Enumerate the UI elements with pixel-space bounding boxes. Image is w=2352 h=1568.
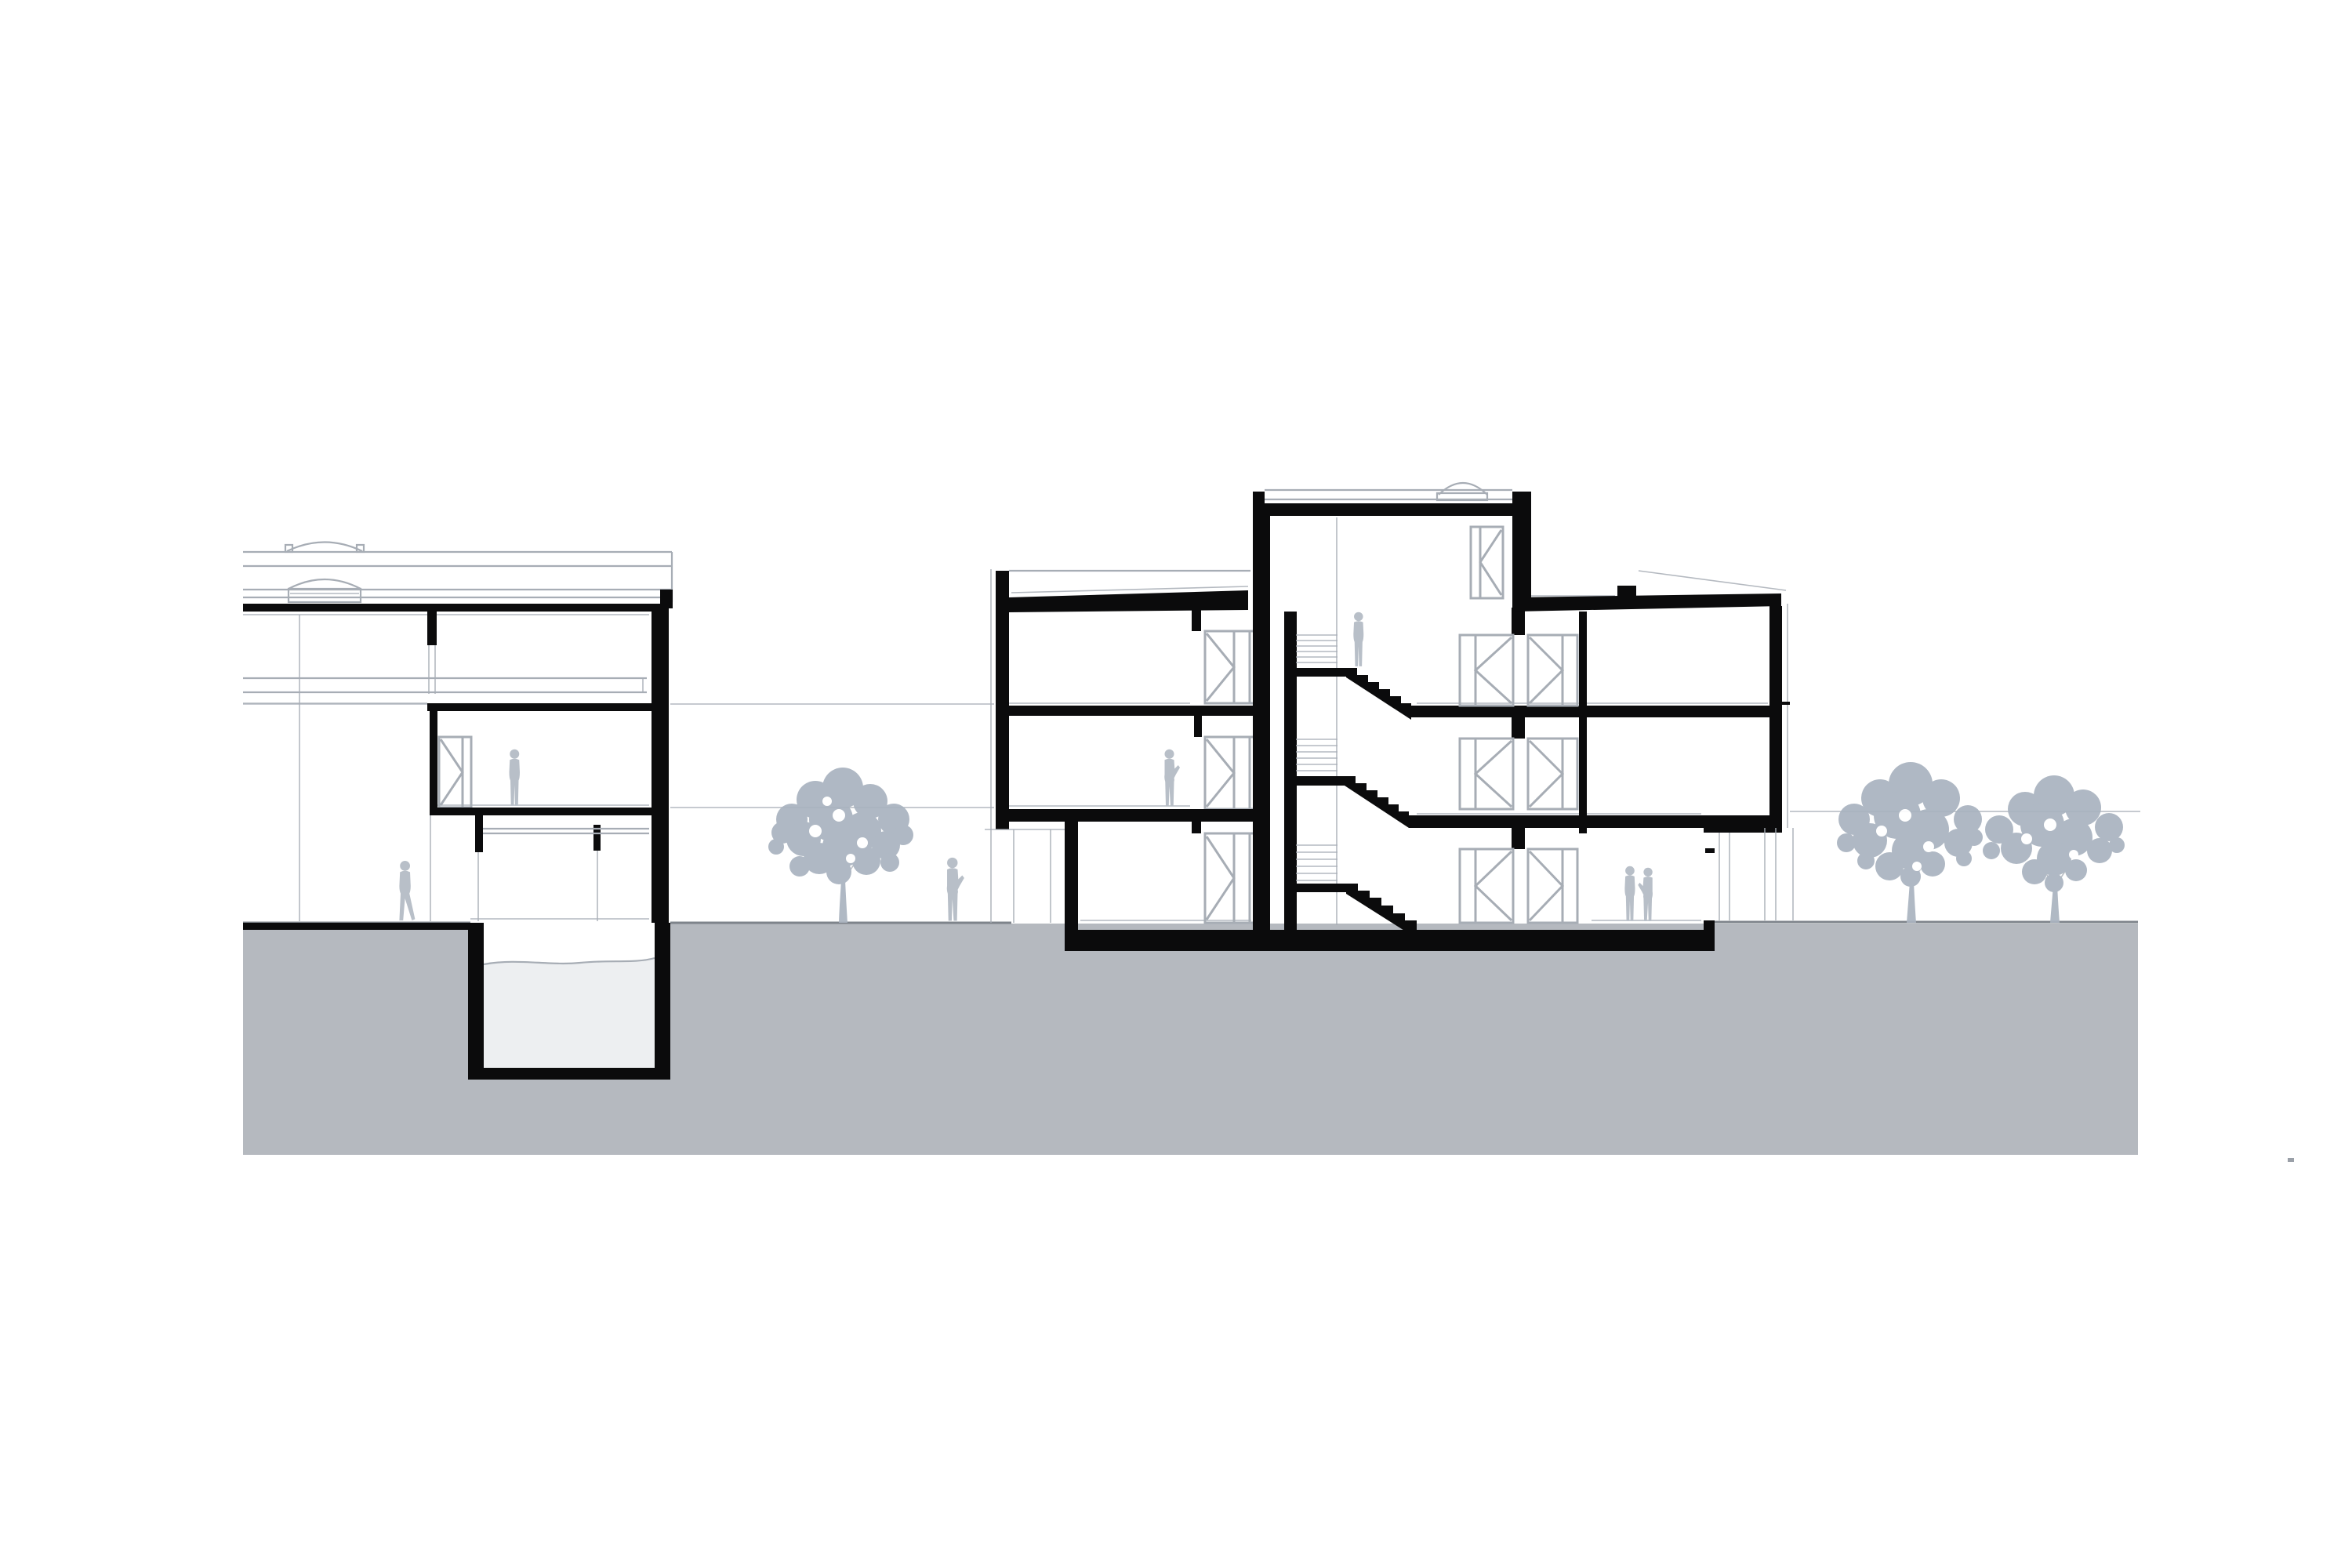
upper-mullion <box>427 612 437 645</box>
door-head-wall-mid <box>1194 716 1202 737</box>
pool-floor-slab <box>468 1068 670 1080</box>
right-wall <box>652 604 669 923</box>
east-slab-1f <box>1409 815 1704 828</box>
door-head-wall-upper <box>1192 610 1201 631</box>
pool-water <box>484 958 655 1069</box>
east-gf-glass-lines <box>1719 828 1793 920</box>
main-building-east-wing <box>1409 571 1793 930</box>
section-drawing <box>0 0 2352 1568</box>
architectural-section-canvas <box>0 0 2352 1568</box>
stray-mark <box>2288 1158 2294 1162</box>
landing-1 <box>1294 884 1346 892</box>
shaft-lintel-gf <box>1512 826 1525 849</box>
tower-parapet-left <box>1253 492 1265 503</box>
middle-slab <box>427 703 669 711</box>
tower-wall-right <box>1512 492 1531 609</box>
west-roof-slab <box>1009 590 1248 612</box>
tree-right-2 <box>1983 775 2125 923</box>
east-doors-2f <box>1460 739 1577 809</box>
room-left-wall <box>430 711 437 808</box>
landing-3 <box>1294 668 1346 677</box>
main-building-west-wing <box>985 569 1261 931</box>
gf-glass-lines <box>430 815 597 921</box>
ground-slab-line <box>243 923 484 930</box>
east-roof-parapet <box>1617 586 1636 608</box>
pool-wall-right <box>655 923 670 1080</box>
west-slab-2f <box>1009 706 1253 716</box>
west-wall <box>996 571 1009 829</box>
background-lines <box>243 704 2140 811</box>
east-outer-wall <box>1769 606 1782 829</box>
flight-3 <box>1346 668 1411 720</box>
middle-room-door <box>439 737 471 808</box>
shaft-lintel-3f <box>1512 608 1525 635</box>
gf-transom <box>483 829 649 833</box>
slab-downstand-2 <box>1704 815 1782 833</box>
west-mid-door <box>1205 737 1254 809</box>
basement-pool <box>468 923 670 1080</box>
person-left-building-room <box>510 750 521 806</box>
tower-roof-lines <box>1265 490 1512 499</box>
gf-mullion-1 <box>475 815 483 852</box>
foundation-slab <box>1065 930 1715 951</box>
tree-canopy <box>1983 775 2125 892</box>
pool-wall-left <box>468 923 484 1080</box>
person-east-gf-1 <box>1624 866 1635 921</box>
left-building-section <box>243 543 673 931</box>
west-upper-door <box>1205 631 1254 703</box>
person-courtyard <box>947 858 964 921</box>
roof-access-door <box>1471 527 1503 598</box>
skylight-dome-upper <box>285 543 364 553</box>
entry-glass-lines <box>1014 829 1051 923</box>
tower-roof-slab <box>1265 503 1531 516</box>
entry-wall <box>1065 822 1078 931</box>
tree-courtyard <box>768 768 913 923</box>
people <box>399 612 1653 921</box>
east-roof-line <box>1639 571 1786 590</box>
roof-slab <box>243 604 655 612</box>
tree-canopy <box>1837 762 1983 887</box>
skylight-dome-lower <box>289 579 361 602</box>
east-gf-tick <box>1705 848 1715 853</box>
east-doors-3f <box>1460 635 1577 706</box>
person-east-gf-2 <box>1638 868 1653 921</box>
person-west-wing-room <box>1164 750 1180 806</box>
east-gf-plinth <box>1704 920 1715 930</box>
tree-right-1 <box>1837 762 1983 923</box>
upper-mullion-glass <box>429 645 435 694</box>
person-stair-landing <box>1353 612 1363 666</box>
flight-2 <box>1345 776 1409 828</box>
room-floor-slab <box>430 808 669 815</box>
west-gf-door <box>1205 833 1254 923</box>
tower-dome-rooflight <box>1437 483 1487 500</box>
tree-trunk <box>839 880 848 923</box>
east-slab-tick <box>1782 702 1790 705</box>
east-partition-wall <box>1579 612 1587 833</box>
landing-2 <box>1294 776 1345 786</box>
east-doors-gf <box>1460 849 1577 923</box>
shaft-inner-wall <box>1284 612 1297 930</box>
person-walking-street <box>399 861 415 920</box>
shaft-lintel-2f <box>1512 716 1525 739</box>
door-head-wall-gf <box>1192 822 1201 833</box>
tower-wall-left <box>1253 503 1270 931</box>
west-slab-1f <box>1007 809 1261 822</box>
east-slab-2f <box>1411 706 1772 717</box>
tree-canopy <box>768 768 913 884</box>
